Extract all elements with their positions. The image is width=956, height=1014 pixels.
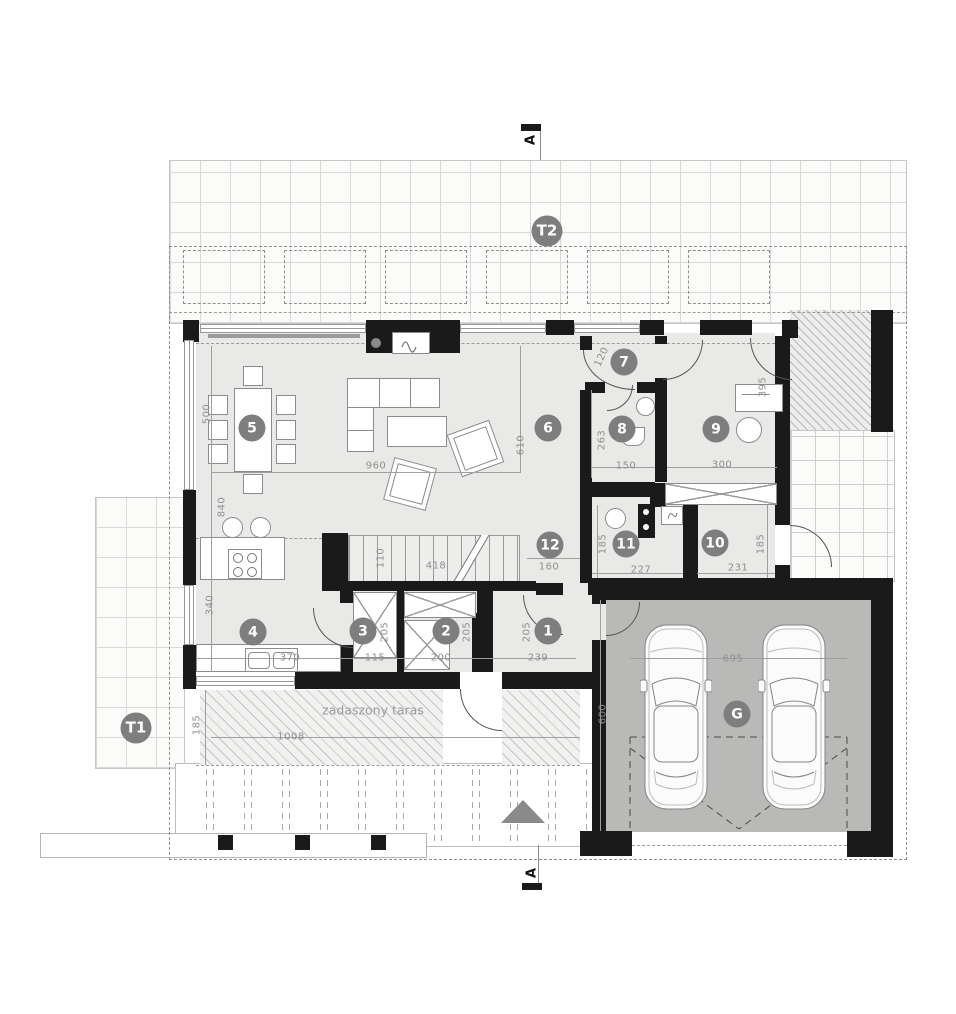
window <box>200 324 366 333</box>
washer-door-icon <box>643 509 649 515</box>
sofa <box>347 407 374 452</box>
fireplace-insert <box>392 332 430 354</box>
wall-segment <box>477 591 493 615</box>
dimension-line <box>527 558 580 559</box>
wall-segment <box>700 320 752 335</box>
utility-sink <box>605 508 626 529</box>
dimension-line <box>211 346 212 672</box>
room-badge-2: 2 <box>433 618 460 645</box>
room-badge-3: 3 <box>350 618 377 645</box>
wall-segment <box>655 378 667 482</box>
section-marker-bar <box>522 883 542 890</box>
dimension-label: 239 <box>528 653 549 664</box>
stair-break-line <box>445 535 493 583</box>
wall-segment <box>580 497 592 583</box>
wall-segment <box>183 645 196 689</box>
dimension-label: 370 <box>280 653 301 664</box>
room-badge-4: 4 <box>240 619 267 646</box>
dining-chair <box>243 474 263 494</box>
wall-segment <box>871 310 893 432</box>
room-badge-12: 12 <box>537 532 564 559</box>
wall-segment <box>295 672 460 689</box>
wall-segment <box>340 591 353 603</box>
staircase <box>348 535 520 583</box>
dimension-label: 231 <box>728 563 749 574</box>
wall-segment <box>580 482 655 497</box>
dimension-line <box>591 390 592 478</box>
room-badge-7: 7 <box>611 349 638 376</box>
bar-stool <box>250 517 271 538</box>
sink-basin <box>248 652 270 669</box>
dimension-line <box>767 505 768 578</box>
section-marker-label: A <box>525 868 540 878</box>
dimension-label: 115 <box>365 653 386 664</box>
pergola-beam <box>688 250 770 304</box>
room-badge-5: 5 <box>239 415 266 442</box>
bar-stool <box>222 517 243 538</box>
washer-door-icon <box>643 524 649 530</box>
dimension-label: 695 <box>723 654 744 665</box>
pergola-beam <box>587 250 669 304</box>
sofa <box>347 378 440 408</box>
dimension-label: 610 <box>516 435 527 456</box>
dimension-line <box>211 737 580 738</box>
wall-segment <box>580 831 632 856</box>
dimension-label: 840 <box>217 497 228 518</box>
wall-segment <box>637 382 657 393</box>
dining-chair <box>243 366 263 386</box>
burner-icon <box>233 567 243 577</box>
washbasin <box>636 397 655 416</box>
dimension-label: 418 <box>426 561 447 572</box>
wall-segment <box>502 672 606 689</box>
dimension-label: 600 <box>598 704 609 725</box>
pergola-beam <box>284 250 366 304</box>
dimension-label: 110 <box>376 548 387 569</box>
armchair-seat <box>453 426 498 471</box>
dining-chair <box>276 444 296 464</box>
dimension-label: 1008 <box>277 732 304 743</box>
wall-segment <box>585 382 605 393</box>
pergola-beam <box>486 250 568 304</box>
dimension-label: 200 <box>431 653 452 664</box>
room-badge-8: 8 <box>609 416 636 443</box>
section-marker-label: A <box>524 135 539 145</box>
section-marker-bar <box>521 124 541 131</box>
wall-segment <box>322 581 536 591</box>
wall-segment <box>322 533 348 583</box>
room-badge-6: 6 <box>535 415 562 442</box>
wardrobe <box>404 592 476 618</box>
built-in-closet <box>665 483 777 505</box>
wall-segment <box>546 320 574 335</box>
wall-segment <box>472 613 493 672</box>
dining-chair <box>276 395 296 415</box>
dimension-line <box>196 658 576 659</box>
window <box>184 340 194 490</box>
dimension-label: 500 <box>202 404 213 425</box>
wall-segment <box>592 578 606 604</box>
dimension-label: 960 <box>366 461 387 472</box>
entry-arrow-icon <box>501 800 545 823</box>
section-line <box>540 131 541 160</box>
dimension-label: 205 <box>380 622 391 643</box>
washer-dryer <box>638 504 655 538</box>
floor-drain <box>661 506 683 525</box>
dimension-line <box>211 472 521 473</box>
pergola-beam <box>183 250 265 304</box>
pergola-line <box>169 312 905 313</box>
dimension-label: 205 <box>522 622 533 643</box>
wall-segment <box>871 600 893 832</box>
window <box>196 676 295 686</box>
wall-segment <box>183 320 199 342</box>
dimension-label: 340 <box>205 595 216 616</box>
burner-icon <box>233 553 243 563</box>
window <box>184 585 194 645</box>
coffee-table <box>387 416 447 447</box>
dimension-label: 160 <box>539 562 560 573</box>
room-badge-9: 9 <box>703 416 730 443</box>
car-icon <box>758 622 830 812</box>
desk-chair <box>736 417 762 443</box>
dimension-label: 185 <box>756 534 767 555</box>
dimension-line <box>205 690 206 765</box>
burner-icon <box>247 567 257 577</box>
room-badge-1: 1 <box>535 618 562 645</box>
room-badge-g: G <box>724 701 751 728</box>
burner-icon <box>247 553 257 563</box>
wall-segment <box>606 578 893 600</box>
dining-chair <box>276 420 296 440</box>
dimension-label: 205 <box>462 622 473 643</box>
room-badge-11: 11 <box>613 531 640 558</box>
flue-dot <box>371 338 381 348</box>
wall-segment <box>683 505 698 582</box>
car-icon <box>640 622 712 812</box>
driveway-line <box>632 845 847 846</box>
wall-segment <box>847 831 893 857</box>
wall-segment <box>536 583 563 595</box>
armchair-seat <box>389 463 431 505</box>
dimension-label: 150 <box>616 461 637 472</box>
window-sill <box>208 334 360 338</box>
dimension-label: 395 <box>758 377 769 398</box>
window <box>574 324 640 333</box>
wall-segment <box>640 320 664 335</box>
wall-segment <box>580 336 592 350</box>
pergola-beam <box>385 250 467 304</box>
dimension-label: 227 <box>631 565 652 576</box>
dimension-label: 263 <box>597 430 608 451</box>
terrace-edge-line <box>196 765 580 766</box>
wall-segment <box>592 640 606 832</box>
room-badge-10: 10 <box>702 530 729 557</box>
floor-plan: zadaszony taras <box>0 0 956 1014</box>
wall-segment <box>183 490 196 585</box>
dimension-label: 185 <box>192 715 203 736</box>
dimension-label: 300 <box>712 460 733 471</box>
wall-segment <box>397 591 404 672</box>
dimension-label: 185 <box>598 534 609 555</box>
window <box>460 324 546 333</box>
terrace-badge-t2: T2 <box>532 216 563 247</box>
terrace-badge-t1: T1 <box>121 713 152 744</box>
